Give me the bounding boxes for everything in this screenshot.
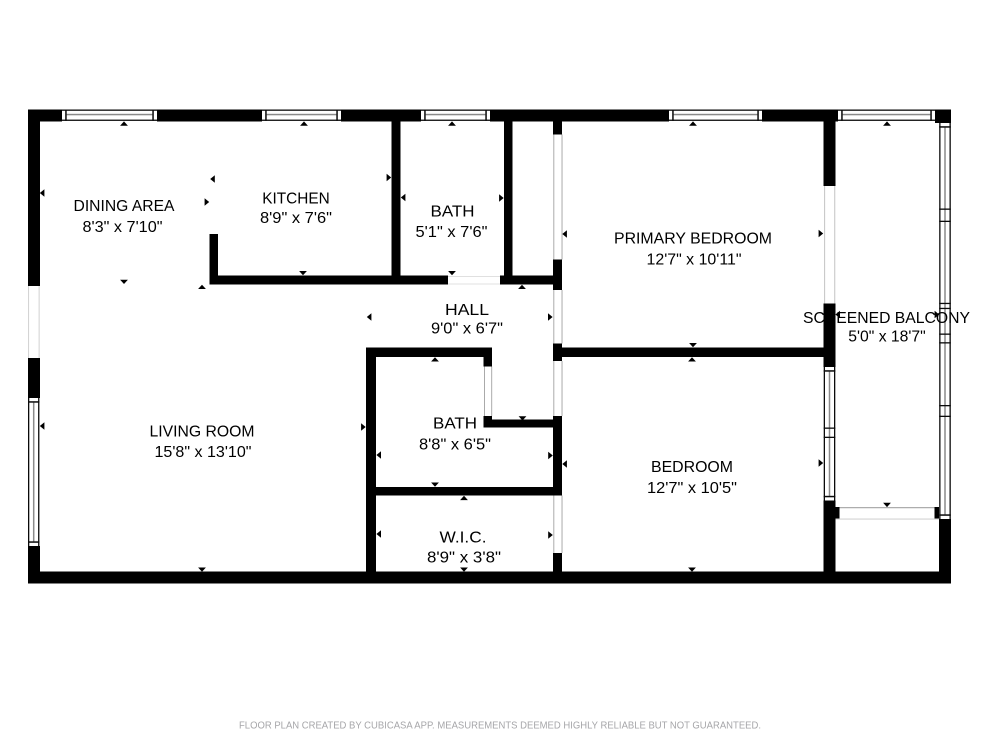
svg-text:BEDROOM: BEDROOM <box>651 459 733 476</box>
svg-text:SCREENED BALCONY: SCREENED BALCONY <box>803 310 970 327</box>
svg-text:PRIMARY BEDROOM: PRIMARY BEDROOM <box>614 230 772 247</box>
svg-text:8'9" x 3'8": 8'9" x 3'8" <box>427 549 501 566</box>
svg-text:DINING AREA: DINING AREA <box>74 198 176 215</box>
svg-text:12'7" x 10'11": 12'7" x 10'11" <box>647 251 742 268</box>
svg-text:12'7" x 10'5": 12'7" x 10'5" <box>647 480 737 497</box>
svg-text:15'8" x 13'10": 15'8" x 13'10" <box>155 444 252 461</box>
svg-text:BATH: BATH <box>433 415 477 432</box>
svg-text:HALL: HALL <box>445 302 489 319</box>
svg-text:5'0" x 18'7": 5'0" x 18'7" <box>848 328 926 345</box>
svg-text:8'3" x 7'10": 8'3" x 7'10" <box>83 219 163 236</box>
svg-text:FLOOR PLAN CREATED BY CUBICASA: FLOOR PLAN CREATED BY CUBICASA APP. MEAS… <box>239 720 761 732</box>
svg-text:8'9" x 7'6": 8'9" x 7'6" <box>260 210 332 227</box>
svg-text:5'1" x 7'6": 5'1" x 7'6" <box>416 224 488 241</box>
svg-text:8'8" x 6'5": 8'8" x 6'5" <box>419 436 491 453</box>
svg-text:LIVING ROOM: LIVING ROOM <box>150 423 255 440</box>
svg-text:BATH: BATH <box>431 203 475 220</box>
svg-text:KITCHEN: KITCHEN <box>262 190 330 207</box>
svg-text:W.I.C.: W.I.C. <box>440 529 487 546</box>
svg-text:9'0" x 6'7": 9'0" x 6'7" <box>431 320 503 337</box>
